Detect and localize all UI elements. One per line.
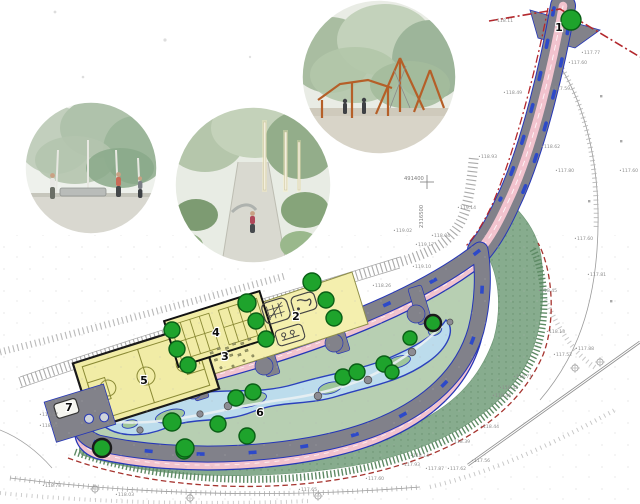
zone-label-2: 2 — [292, 310, 300, 323]
tree-symbol — [245, 384, 261, 400]
promenade-entrance-path — [480, 6, 600, 250]
elevation-label: 117.62 — [450, 466, 466, 472]
zone-label-7: 7 — [65, 401, 73, 414]
elevation-label: 118.42 — [502, 385, 518, 391]
elevation-label: 117.88 — [578, 346, 594, 352]
tree-symbol — [239, 428, 255, 444]
elevation-label: 118.44 — [483, 424, 499, 430]
elevation-label: 118.71 — [516, 374, 532, 380]
elevation-label: 118.03 — [118, 492, 134, 498]
elevation-label: 118.62 — [544, 144, 560, 150]
elevation-label: 117.60 — [368, 476, 384, 482]
tree-symbol — [349, 364, 365, 380]
elevation-label: 117.65 — [301, 487, 317, 493]
elevation-label: 118.26 — [375, 283, 391, 289]
tree-symbol — [228, 390, 244, 406]
tree-symbol — [169, 341, 185, 357]
elevation-label: 118.49 — [506, 90, 522, 96]
tree-symbol — [248, 313, 264, 329]
tree-symbol — [385, 365, 399, 379]
zone-label-6: 6 — [256, 406, 264, 419]
tree-symbol — [163, 413, 181, 431]
elevation-label: 118.73 — [45, 483, 61, 489]
photo-inset-birch-plaza — [17, 98, 167, 234]
elevation-label: 118.87 — [42, 412, 58, 418]
elevation-label: 118.95 — [42, 423, 58, 429]
elevation-label: 118.13 — [549, 329, 565, 335]
elevation-label: 118.93 — [481, 154, 497, 160]
elevation-label: 118.04 — [434, 233, 450, 239]
elevation-label: 117.56 — [474, 458, 490, 464]
elevation-label: 117.80 — [558, 168, 574, 174]
tree-symbol — [318, 292, 334, 308]
elevation-label: 117.60 — [622, 168, 638, 174]
zone-label-5: 5 — [140, 374, 148, 387]
child-figure — [250, 211, 255, 233]
elevation-label: 118.39 — [454, 439, 470, 445]
tree-symbol — [561, 10, 581, 30]
tree-symbol — [326, 310, 342, 326]
elevation-label: 117.93 — [404, 462, 420, 468]
tree-symbol — [425, 315, 441, 331]
tree-symbol — [303, 273, 321, 291]
stipple-texture — [0, 235, 640, 504]
tree-symbol — [180, 357, 196, 373]
grid-reference-labels: 4914002316500 — [404, 176, 425, 228]
elevation-label: 118.46 — [495, 393, 511, 399]
masterplan-canvas: 118.11117.77117.60117.59118.49118.62117.… — [0, 0, 640, 504]
tree-symbol — [164, 322, 180, 338]
site-plan-drawing: 118.11117.77117.60117.59118.49118.62117.… — [0, 0, 640, 504]
tree-symbol — [93, 439, 111, 457]
elevation-label: 117.60 — [571, 60, 587, 66]
elevation-label: 117.81 — [590, 272, 606, 278]
tree-symbol — [403, 331, 417, 345]
grid-reference-label: 491400 — [404, 176, 424, 182]
zone-label-4: 4 — [212, 326, 220, 339]
elevation-label: 119.10 — [415, 264, 431, 270]
elevation-label: 117.87 — [428, 466, 444, 472]
zone-label-1: 1 — [555, 21, 563, 34]
zone-label-3: 3 — [221, 350, 229, 363]
tree-symbol — [176, 439, 194, 457]
elevation-label: 118.11 — [497, 18, 513, 24]
elevation-label: 117.77 — [584, 50, 600, 56]
elevation-label: 117.60 — [577, 236, 593, 242]
tree-symbol — [238, 294, 256, 312]
elevation-label: 119.14 — [460, 205, 476, 211]
elevation-label: 118.14 — [413, 453, 429, 459]
bench — [60, 188, 106, 196]
grid-reference-label: 2316500 — [419, 205, 425, 228]
elevation-label: 119.02 — [396, 228, 412, 234]
elevation-label: 117.52 — [556, 352, 572, 358]
tree-symbol — [258, 331, 274, 347]
elevation-label: 118.45 — [541, 288, 557, 294]
elevation-label: 117.59 — [554, 86, 570, 92]
tree-symbol — [210, 416, 226, 432]
elevation-label: 119.17 — [418, 242, 434, 248]
